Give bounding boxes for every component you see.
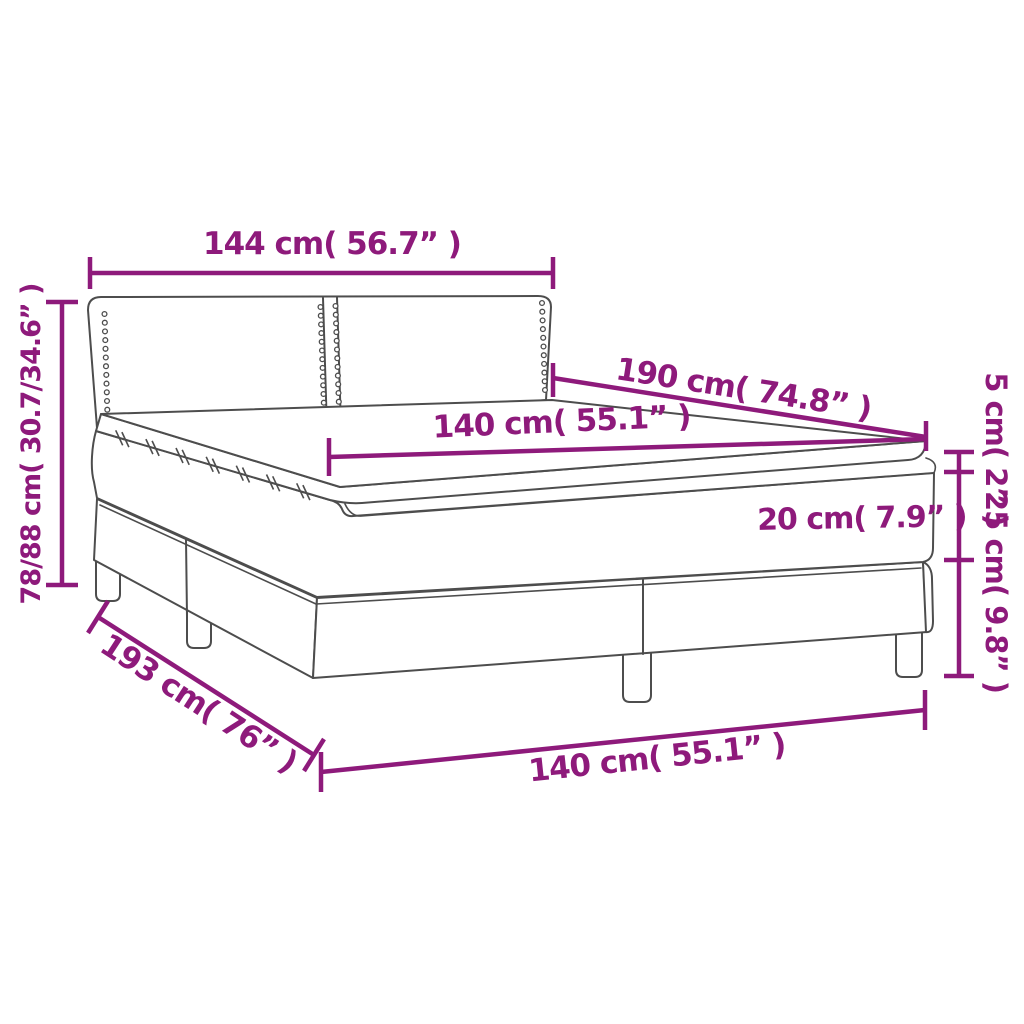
dimension-label: 78/88 cm( 30.7/34.6” ) xyxy=(16,284,47,605)
nailhead-dot xyxy=(319,339,324,344)
nailhead-dot xyxy=(105,407,110,412)
dimension-label: 144 cm( 56.7” ) xyxy=(203,226,461,262)
nailhead-dot xyxy=(335,365,340,370)
nailhead-dot xyxy=(318,313,323,318)
nailhead-dot xyxy=(336,391,341,396)
nailhead-dot xyxy=(102,312,107,317)
nailhead-dot xyxy=(336,382,341,387)
nailhead-dot xyxy=(336,399,341,404)
nailhead-dot xyxy=(543,388,548,393)
nailhead-dot xyxy=(321,400,326,405)
nailhead-dot xyxy=(320,348,325,353)
nailhead-dot xyxy=(540,301,545,306)
nailhead-dot xyxy=(319,331,324,336)
nailhead-dot xyxy=(321,374,326,379)
nailhead-dot xyxy=(334,321,339,326)
nailhead-dot xyxy=(104,364,109,369)
nailhead-dot xyxy=(104,390,109,395)
nailhead-dot xyxy=(320,366,325,371)
nailhead-dot xyxy=(103,355,108,360)
nailhead-dot xyxy=(104,373,109,378)
dimension-mattress-thickness: 20 cm( 7.9” ) xyxy=(757,499,967,538)
nailhead-dot xyxy=(541,353,546,358)
nailhead-dot xyxy=(103,338,108,343)
nailhead-dot xyxy=(541,327,546,332)
nailhead-dot xyxy=(336,373,341,378)
nailhead-dot xyxy=(542,370,547,375)
nailhead-dot xyxy=(102,320,107,325)
bed-dimension-diagram: 144 cm( 56.7” ) 78/88 cm( 30.7/34.6” ) 1… xyxy=(0,0,1024,1024)
nailhead-dot xyxy=(540,318,545,323)
nailhead-dot xyxy=(104,381,109,386)
dimension-label: 20 cm( 7.9” ) xyxy=(757,499,967,538)
nailhead-dot xyxy=(333,312,338,317)
nailhead-dot xyxy=(335,356,340,361)
diagram-canvas: 144 cm( 56.7” ) 78/88 cm( 30.7/34.6” ) 1… xyxy=(0,0,1024,1024)
nailhead-dot xyxy=(333,304,338,309)
nailhead-dot xyxy=(320,357,325,362)
nailhead-dot xyxy=(335,347,340,352)
base-split-left xyxy=(186,539,187,617)
nailhead-dot xyxy=(334,338,339,343)
nailhead-dot xyxy=(319,322,324,327)
nailhead-dot xyxy=(103,329,108,334)
nailhead-dot xyxy=(334,330,339,335)
nailhead-dot xyxy=(321,383,326,388)
nailhead-dot xyxy=(318,305,323,310)
nailhead-dot xyxy=(105,399,110,404)
dimension-label-base-height: 25 cm( 9.8” ) xyxy=(979,491,1013,693)
nailhead-dot xyxy=(541,344,546,349)
nailhead-dot xyxy=(540,309,545,314)
nailhead-dot xyxy=(103,346,108,351)
nailhead-dot xyxy=(542,362,547,367)
nailhead-dot xyxy=(542,379,547,384)
nailhead-dot xyxy=(541,335,546,340)
nailhead-dot xyxy=(321,392,326,397)
